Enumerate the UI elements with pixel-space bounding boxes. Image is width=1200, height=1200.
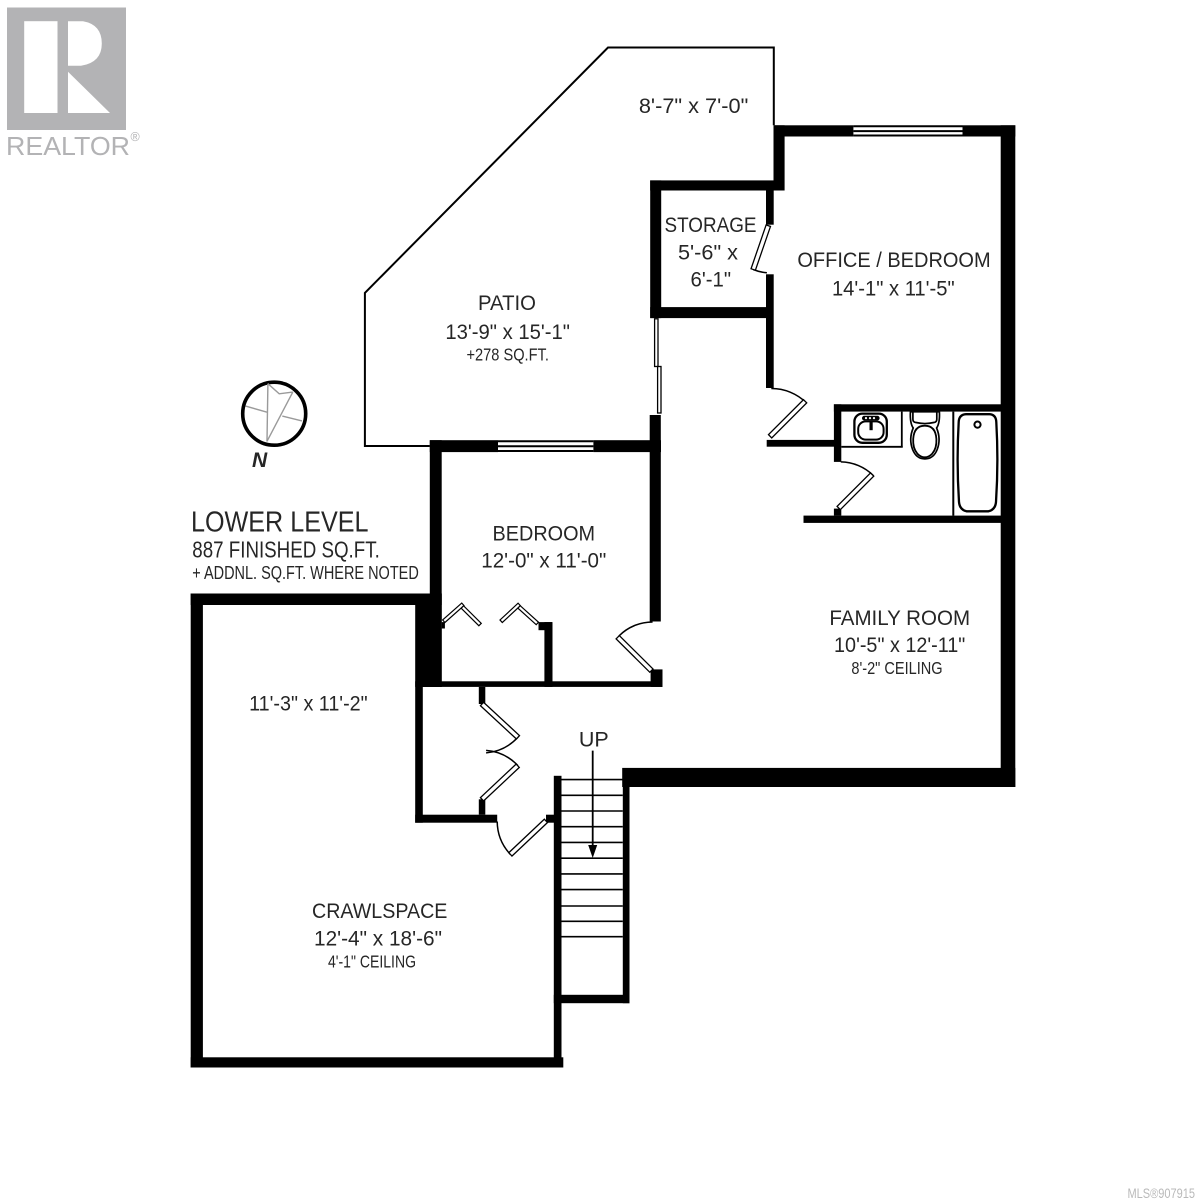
svg-text:4'-1" CEILING: 4'-1" CEILING (328, 952, 416, 972)
svg-text:N: N (252, 449, 268, 472)
svg-text:+278 SQ.FT.: +278 SQ.FT. (467, 344, 549, 364)
svg-text:UP: UP (579, 728, 609, 752)
svg-text:STORAGE: STORAGE (665, 213, 757, 237)
svg-text:MLS®907915: MLS®907915 (1128, 1186, 1196, 1200)
svg-text:LOWER LEVEL: LOWER LEVEL (191, 507, 369, 539)
svg-text:13'-9" x 15'-1": 13'-9" x 15'-1" (445, 320, 570, 344)
svg-text:5'-6" x: 5'-6" x (678, 240, 738, 264)
svg-text:OFFICE / BEDROOM: OFFICE / BEDROOM (797, 248, 990, 272)
svg-text:+ ADDNL. SQ.FT. WHERE NOTED: + ADDNL. SQ.FT. WHERE NOTED (192, 562, 418, 583)
svg-text:12'-4" x 18'-6": 12'-4" x 18'-6" (314, 927, 442, 951)
svg-text:PATIO: PATIO (478, 291, 536, 315)
svg-text:®: ® (131, 130, 141, 144)
svg-text:11'-3" x 11'-2": 11'-3" x 11'-2" (249, 692, 368, 716)
svg-text:BEDROOM: BEDROOM (493, 522, 596, 546)
svg-text:8'-7" x 7'-0": 8'-7" x 7'-0" (639, 94, 749, 118)
svg-text:12'-0" x 11'-0": 12'-0" x 11'-0" (481, 549, 606, 573)
svg-text:14'-1" x 11'-5": 14'-1" x 11'-5" (832, 277, 955, 301)
svg-text:887 FINISHED SQ.FT.: 887 FINISHED SQ.FT. (192, 537, 379, 563)
svg-text:FAMILY ROOM: FAMILY ROOM (829, 606, 970, 630)
svg-text:CRAWLSPACE: CRAWLSPACE (312, 899, 447, 923)
svg-text:6'-1": 6'-1" (691, 268, 732, 292)
svg-text:8'-2" CEILING: 8'-2" CEILING (851, 658, 942, 678)
svg-text:REALTOR: REALTOR (6, 131, 130, 161)
svg-text:10'-5" x 12'-11": 10'-5" x 12'-11" (834, 633, 965, 657)
